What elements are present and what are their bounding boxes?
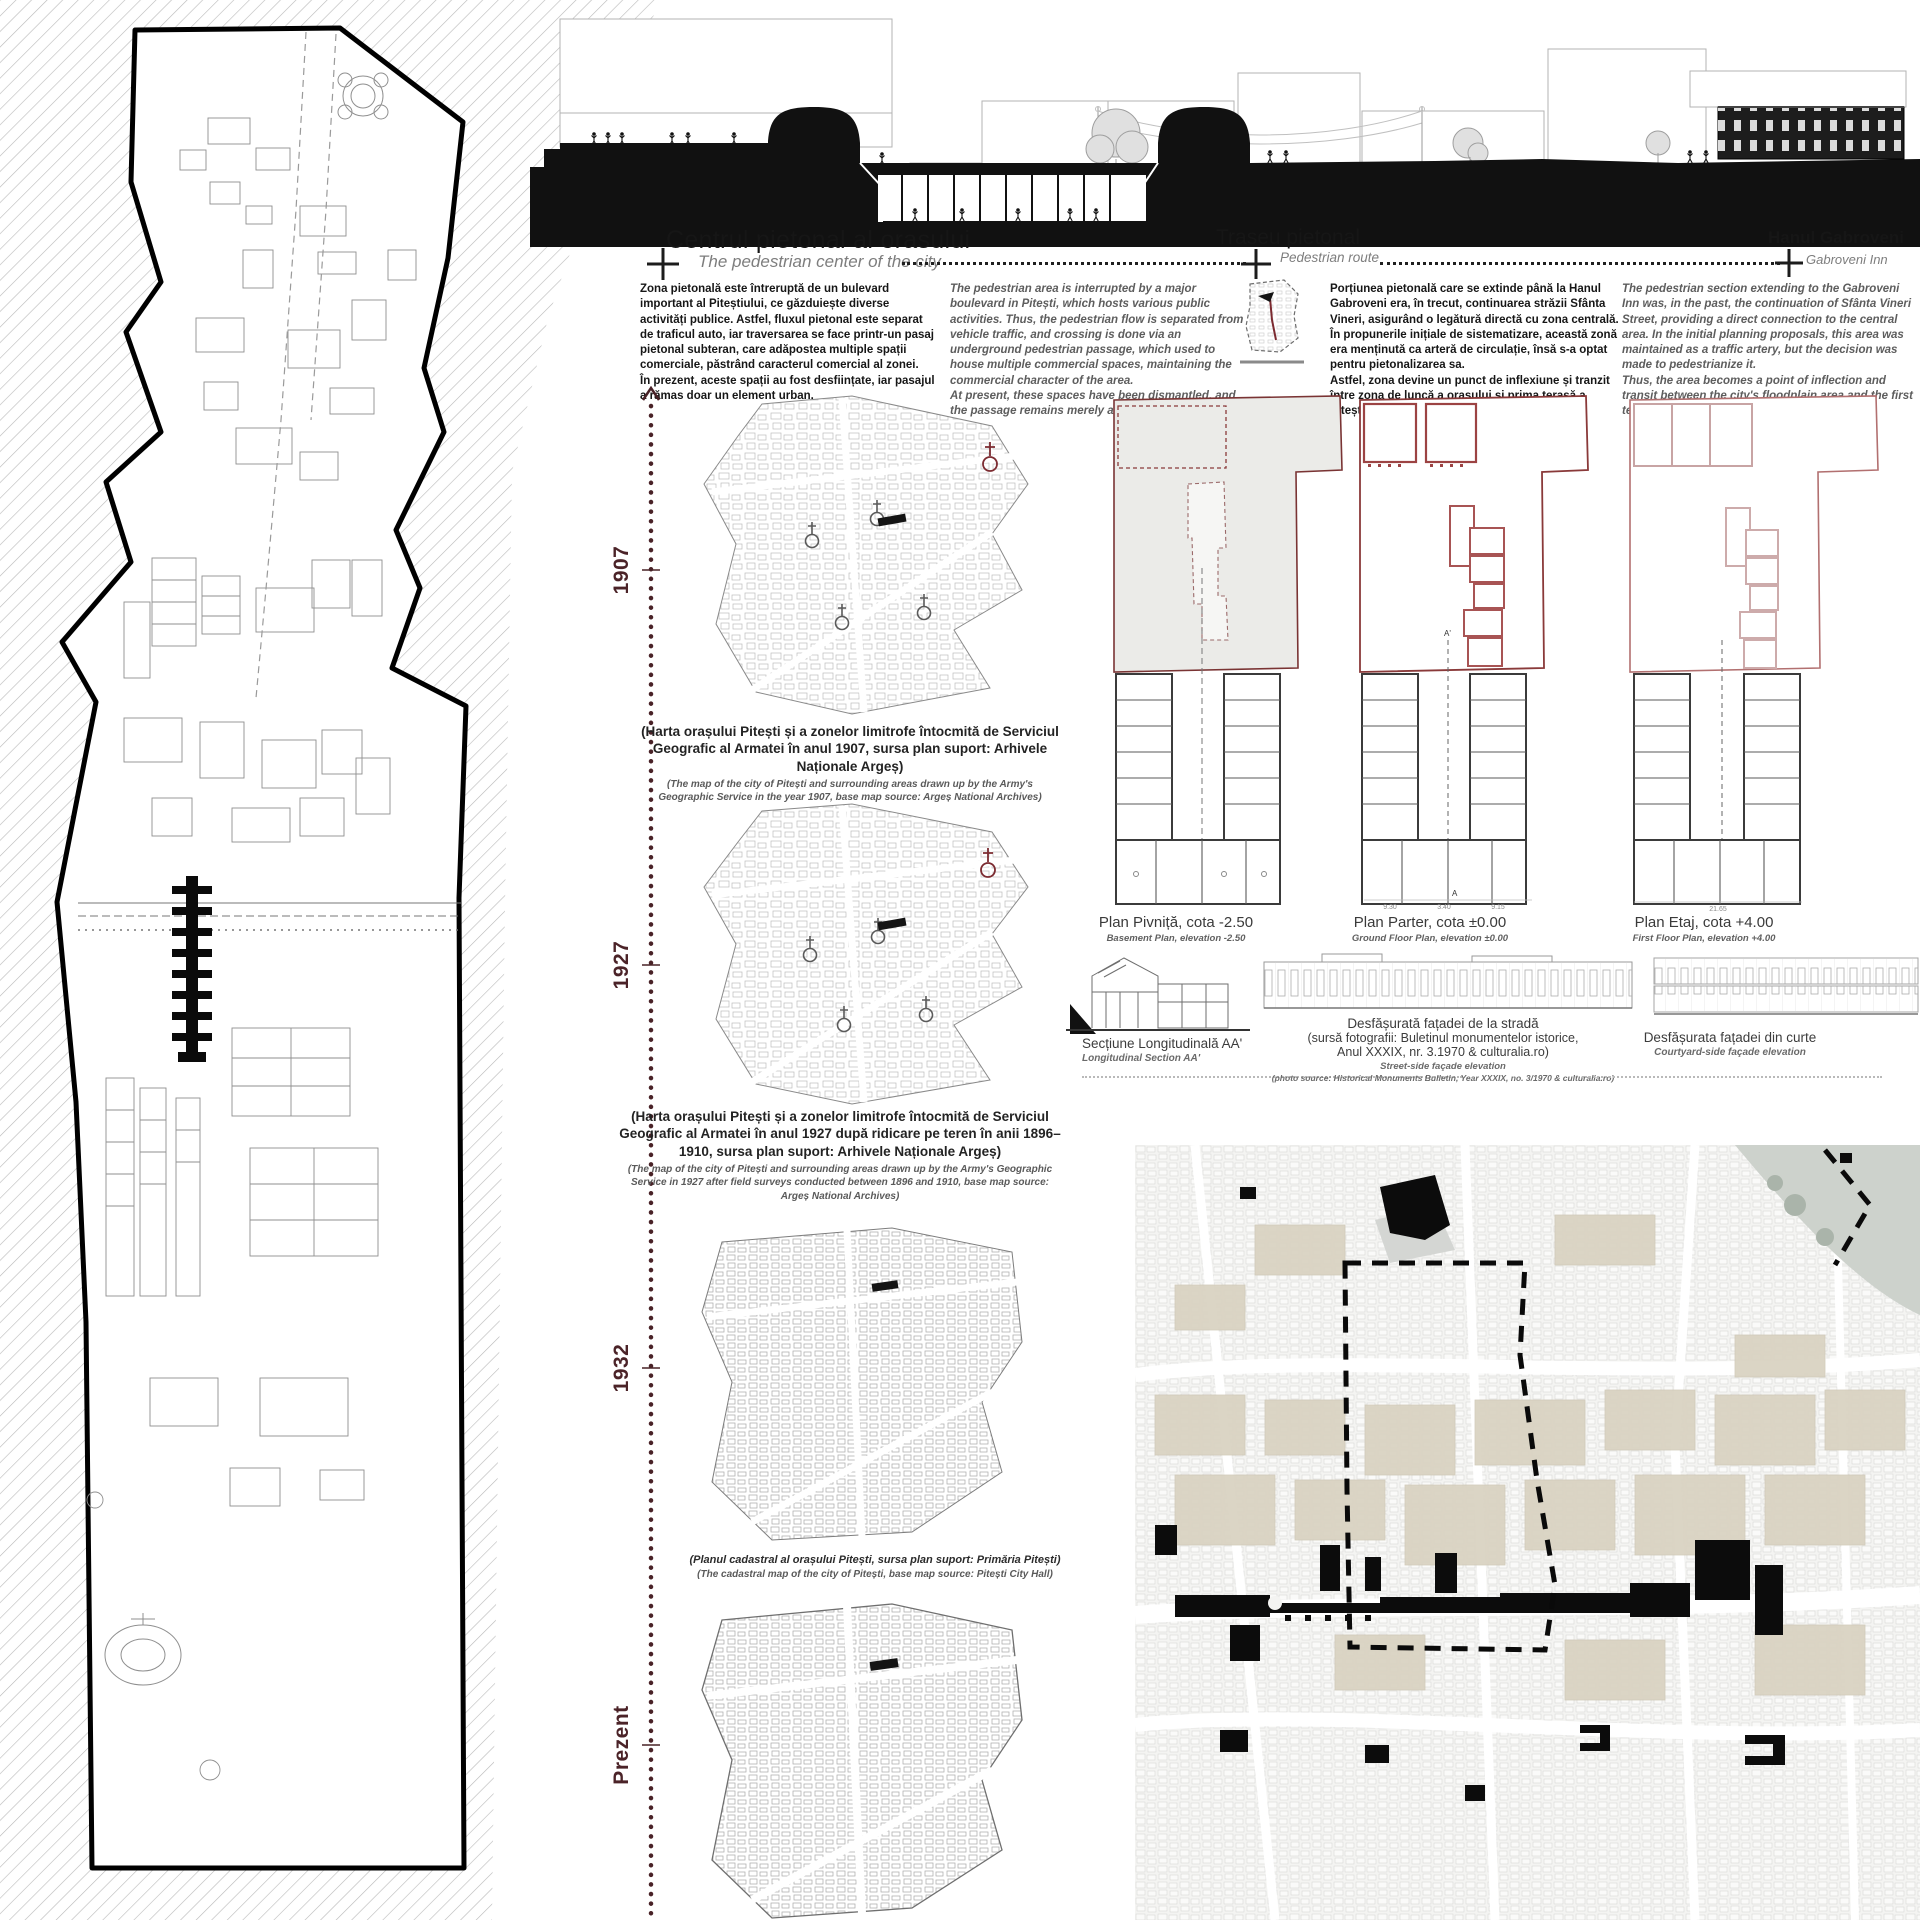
location-key-map <box>1240 276 1304 368</box>
paragraph-text: Porțiunea pietonală care se extinde până… <box>1330 282 1630 374</box>
dotted-rule <box>1582 1076 1882 1078</box>
caption-ro: (Harta orașului Pitești și a zonelor lim… <box>640 723 1060 775</box>
paragraph-text: The pedestrian area is interrupted by a … <box>950 282 1252 389</box>
plan-label-en: Ground Floor Plan, elevation ±0.00 <box>1330 933 1530 944</box>
courtyard-facade-label: Desfășurata fațadei din curte Courtyard-… <box>1560 1030 1900 1058</box>
timeline-year-1932: 1932 <box>610 1328 634 1408</box>
header-center-title: Centrul pietonal al orasului <box>666 226 970 255</box>
header-route-subtitle: Pedestrian route <box>1280 250 1379 265</box>
caption-en: (The map of the city of Pitești and surr… <box>618 1163 1062 1204</box>
plus-marker-icon <box>643 244 683 284</box>
facade-label-ro: Desfășurată fațadei de la stradă <box>1248 1016 1638 1031</box>
plan-pivnita-drawing <box>1106 388 1350 912</box>
caption-1932: (Planul cadastral al orașului Pitești, s… <box>680 1553 1070 1582</box>
street-facade-drawing <box>1262 952 1634 1014</box>
gabroveni-inn-facade <box>1718 107 1904 159</box>
dotted-leader-line <box>1380 262 1780 265</box>
timeline-year-prezent: Prezent <box>610 1705 634 1785</box>
plus-marker-icon <box>1772 246 1806 280</box>
caption-1927: (Harta orașului Pitești și a zonelor lim… <box>618 1108 1062 1203</box>
plan-label-en: Basement Plan, elevation -2.50 <box>1076 933 1276 944</box>
caption-ro: (Planul cadastral al orașului Pitești, s… <box>680 1553 1070 1568</box>
caption-en: (The cadastral map of the city of Piteșt… <box>680 1568 1070 1582</box>
caption-en: (The map of the city of Pitești and surr… <box>640 778 1060 805</box>
facade-label-en: Courtyard-side façade elevation <box>1560 1047 1900 1058</box>
paragraph-text: Zona pietonală este întreruptă de un bul… <box>640 282 938 374</box>
timeline-year-1927: 1927 <box>610 925 634 1005</box>
plan-label-ro: Plan Etaj, cota +4.00 <box>1604 914 1804 931</box>
caption-1907: (Harta orașului Pitești și a zonelor lim… <box>640 723 1060 805</box>
dimension-label: 9.30 <box>1383 904 1397 911</box>
plan-label-en: First Floor Plan, elevation +4.00 <box>1604 933 1804 944</box>
historical-map-1932 <box>682 1222 1042 1547</box>
section-label-en: Longitudinal Section AA' <box>1082 1053 1242 1064</box>
plan-parter-label: Plan Parter, cota ±0.00 Ground Floor Pla… <box>1330 914 1530 944</box>
city-figure-ground-map <box>1135 1145 1920 1920</box>
plan-etaj-drawing: 21.65 <box>1622 388 1884 912</box>
historical-map-1927 <box>692 800 1062 1112</box>
dimension-label: 9.15 <box>1491 904 1505 911</box>
timeline-year-1907: 1907 <box>610 530 634 610</box>
section-mark-label: A <box>1452 889 1458 898</box>
dotted-leader-line <box>902 262 1246 265</box>
section-label-ro: Secțiune Longitudinală AA' <box>1082 1036 1242 1051</box>
historical-map-1907 <box>692 392 1062 722</box>
caption-ro: (Harta orașului Pitești și a zonelor lim… <box>618 1108 1062 1160</box>
timeline-arrow-icon <box>643 388 659 400</box>
presentation-board: Centrul pietonal al orasului The pedestr… <box>0 0 1920 1920</box>
plan-label-ro: Plan Pivniță, cota -2.50 <box>1076 914 1276 931</box>
plan-parter-drawing: A' 9.30 3.40 9.15 A <box>1352 388 1596 912</box>
site-plan-drawing <box>0 0 660 1920</box>
map-prezent <box>682 1598 1042 1920</box>
plan-etaj-label: Plan Etaj, cota +4.00 First Floor Plan, … <box>1604 914 1804 944</box>
dimension-label: 21.65 <box>1709 906 1727 912</box>
longitudinal-section-drawing <box>1062 946 1254 1034</box>
plan-pivnita-label: Plan Pivniță, cota -2.50 Basement Plan, … <box>1076 914 1276 944</box>
section-mark-label: A' <box>1444 629 1451 638</box>
street-elevation-drawing <box>530 15 1920 260</box>
paragraph-text: The pedestrian section extending to the … <box>1622 282 1918 374</box>
facade-label-en: Street-side façade elevation <box>1248 1061 1638 1072</box>
dimension-label: 3.40 <box>1437 904 1451 911</box>
plaza-circle <box>1268 1596 1282 1610</box>
longitudinal-section-label: Secțiune Longitudinală AA' Longitudinal … <box>1082 1036 1242 1064</box>
facade-label-ro: Desfășurata fațadei din curte <box>1560 1030 1900 1045</box>
courtyard-facade-drawing <box>1652 950 1920 1022</box>
header-inn-subtitle: Gabroveni Inn <box>1806 252 1888 267</box>
facade-label-en: (photo source: Historical Monuments Bull… <box>1248 1073 1638 1083</box>
header-inn-title: Hanul Gabroveni <box>1768 228 1904 248</box>
plan-label-ro: Plan Parter, cota ±0.00 <box>1330 914 1530 931</box>
